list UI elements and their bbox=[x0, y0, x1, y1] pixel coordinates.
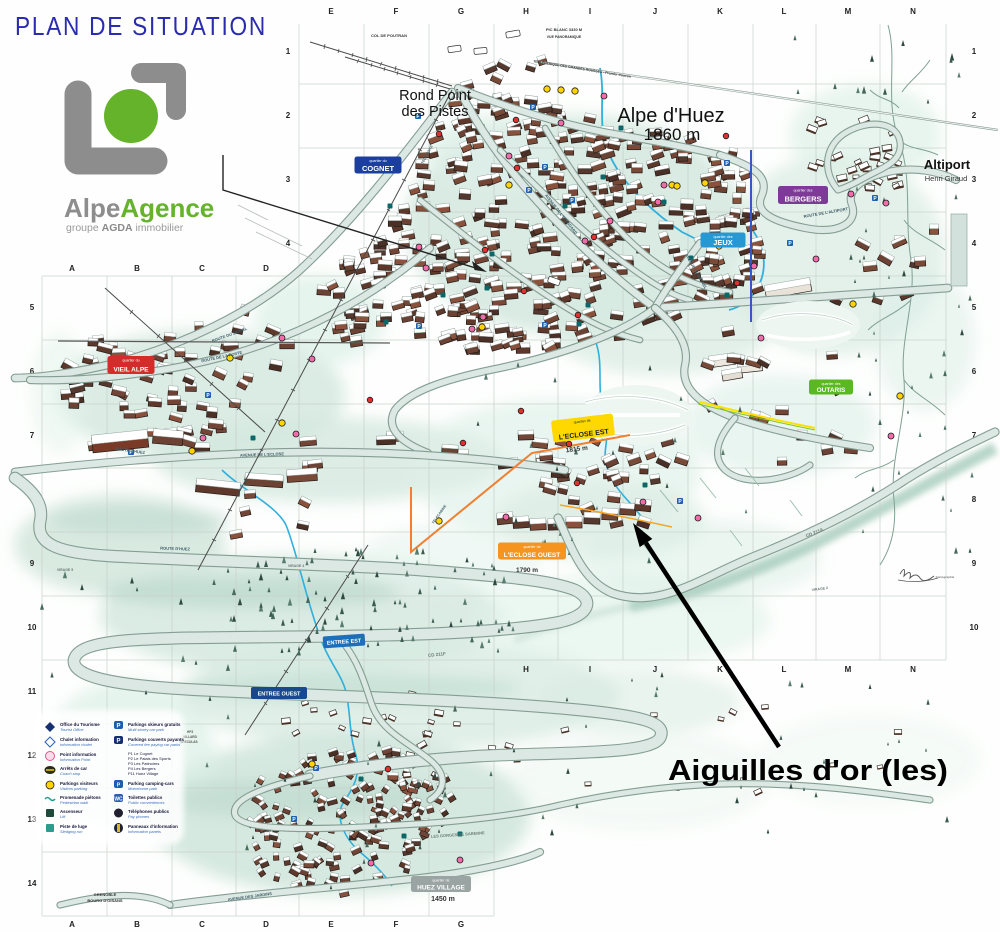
svg-text:M: M bbox=[845, 7, 852, 16]
svg-text:5: 5 bbox=[972, 303, 977, 312]
svg-text:Henri Giraud: Henri Giraud bbox=[925, 174, 968, 183]
svg-text:quartier du: quartier du bbox=[369, 159, 386, 163]
svg-text:14: 14 bbox=[28, 879, 37, 888]
svg-text:BERGERS: BERGERS bbox=[784, 195, 821, 204]
svg-text:2: 2 bbox=[286, 111, 291, 120]
svg-text:Information Point: Information Point bbox=[60, 757, 91, 762]
svg-text:Motorhome park: Motorhome park bbox=[128, 786, 158, 791]
svg-text:Tourist Office: Tourist Office bbox=[60, 727, 84, 732]
svg-text:COGNET: COGNET bbox=[362, 164, 395, 173]
svg-text:VILLARD: VILLARD bbox=[183, 735, 198, 739]
svg-text:AlpeAgence: AlpeAgence bbox=[64, 193, 214, 223]
svg-text:BOURG D'OISANS: BOURG D'OISANS bbox=[87, 898, 123, 903]
svg-text:HUEZ VILLAGE: HUEZ VILLAGE bbox=[417, 885, 465, 892]
svg-text:COL DE POUTRAN: COL DE POUTRAN bbox=[371, 33, 407, 38]
svg-text:VIRAGE 4: VIRAGE 4 bbox=[288, 564, 304, 568]
svg-text:F: F bbox=[394, 920, 399, 929]
svg-text:5: 5 bbox=[30, 303, 35, 312]
svg-text:quartier de: quartier de bbox=[432, 878, 449, 882]
svg-text:K: K bbox=[717, 665, 723, 674]
svg-text:3: 3 bbox=[972, 175, 977, 184]
svg-text:D: D bbox=[263, 920, 269, 929]
svg-text:L'ECLOSE OUEST: L'ECLOSE OUEST bbox=[504, 552, 560, 559]
svg-text:PLAN DE SITUATION: PLAN DE SITUATION bbox=[15, 11, 267, 41]
svg-text:Cartographie: Cartographie bbox=[936, 575, 955, 579]
svg-text:1: 1 bbox=[972, 47, 977, 56]
svg-text:quartier de: quartier de bbox=[523, 545, 540, 549]
svg-text:VIRAGE 5: VIRAGE 5 bbox=[57, 568, 73, 572]
svg-text:Information panels: Information panels bbox=[128, 829, 161, 834]
svg-text:Aiguilles d'or (les): Aiguilles d'or (les) bbox=[668, 755, 948, 787]
svg-text:1: 1 bbox=[286, 47, 291, 56]
svg-text:G: G bbox=[458, 7, 464, 16]
svg-text:Pedestrian walk: Pedestrian walk bbox=[60, 800, 89, 805]
svg-text:WC: WC bbox=[114, 797, 123, 803]
svg-text:F: F bbox=[394, 7, 399, 16]
svg-text:1860 m: 1860 m bbox=[644, 125, 701, 144]
svg-text:L: L bbox=[782, 665, 787, 674]
svg-text:K: K bbox=[717, 7, 723, 16]
svg-text:1790 m: 1790 m bbox=[516, 567, 538, 574]
svg-text:D: D bbox=[263, 264, 269, 273]
svg-text:B: B bbox=[134, 264, 140, 273]
svg-text:quartier des: quartier des bbox=[822, 382, 841, 386]
svg-text:6: 6 bbox=[972, 367, 977, 376]
svg-text:4: 4 bbox=[972, 239, 977, 248]
svg-text:J: J bbox=[653, 7, 657, 16]
svg-text:P: P bbox=[116, 724, 120, 730]
svg-text:ENTREE OUEST: ENTREE OUEST bbox=[258, 692, 301, 698]
svg-text:I: I bbox=[589, 665, 591, 674]
svg-text:PIC BLANC 3330 M: PIC BLANC 3330 M bbox=[546, 27, 583, 32]
svg-text:ROUTE D'HUEZ: ROUTE D'HUEZ bbox=[160, 545, 191, 551]
svg-text:GRENOBLE: GRENOBLE bbox=[94, 892, 117, 897]
svg-text:7: 7 bbox=[30, 431, 35, 440]
svg-text:VIEIL ALPE: VIEIL ALPE bbox=[113, 367, 149, 374]
svg-text:M: M bbox=[845, 665, 852, 674]
svg-text:2: 2 bbox=[972, 111, 977, 120]
svg-text:I: I bbox=[589, 7, 591, 16]
svg-text:H: H bbox=[523, 7, 529, 16]
svg-text:G: G bbox=[458, 920, 464, 929]
svg-text:Multi storey car park: Multi storey car park bbox=[128, 727, 165, 732]
svg-text:des Pistes: des Pistes bbox=[402, 104, 469, 120]
svg-text:C: C bbox=[199, 264, 205, 273]
svg-text:Alpe d'Huez: Alpe d'Huez bbox=[617, 105, 724, 127]
svg-text:Public conveniences: Public conveniences bbox=[128, 800, 164, 805]
svg-text:9: 9 bbox=[972, 559, 977, 568]
svg-text:C: C bbox=[199, 920, 205, 929]
svg-text:groupe AGDA immobilier: groupe AGDA immobilier bbox=[66, 222, 184, 234]
svg-text:Sledging run: Sledging run bbox=[60, 829, 83, 834]
svg-text:Covered fee paying car parks: Covered fee paying car parks bbox=[128, 742, 180, 747]
svg-text:HP3: HP3 bbox=[187, 730, 193, 734]
svg-text:10: 10 bbox=[28, 623, 37, 632]
svg-text:Lift: Lift bbox=[60, 814, 66, 819]
svg-text:Altiport: Altiport bbox=[924, 157, 971, 172]
svg-text:VUE PANORAMIQUE: VUE PANORAMIQUE bbox=[547, 35, 582, 39]
svg-text:Information chalet: Information chalet bbox=[60, 742, 93, 747]
svg-text:L: L bbox=[782, 7, 787, 16]
svg-text:J: J bbox=[653, 665, 657, 674]
svg-text:H: H bbox=[523, 665, 529, 674]
svg-text:A: A bbox=[69, 264, 75, 273]
svg-text:JEUX: JEUX bbox=[713, 238, 733, 247]
svg-text:A: A bbox=[69, 920, 75, 929]
svg-text:OUTARIS: OUTARIS bbox=[817, 387, 846, 394]
svg-text:E: E bbox=[328, 7, 334, 16]
svg-text:Visitors parking: Visitors parking bbox=[60, 786, 88, 791]
svg-text:N: N bbox=[910, 665, 916, 674]
svg-text:11: 11 bbox=[28, 687, 37, 696]
svg-text:quartier du: quartier du bbox=[122, 358, 139, 362]
svg-text:9: 9 bbox=[30, 559, 35, 568]
svg-text:RECULAS: RECULAS bbox=[182, 740, 197, 744]
svg-text:E: E bbox=[328, 920, 334, 929]
svg-text:8: 8 bbox=[972, 495, 977, 504]
svg-text:Coach stop: Coach stop bbox=[60, 771, 81, 776]
svg-text:quartier des: quartier des bbox=[794, 188, 813, 192]
svg-text:N: N bbox=[910, 7, 916, 16]
svg-text:B: B bbox=[134, 920, 140, 929]
svg-text:Rond Point: Rond Point bbox=[399, 88, 471, 104]
svg-text:3: 3 bbox=[286, 175, 291, 184]
svg-text:10: 10 bbox=[970, 623, 979, 632]
svg-text:Pay phones: Pay phones bbox=[128, 814, 149, 819]
svg-text:P11 Huez Village: P11 Huez Village bbox=[128, 771, 159, 776]
svg-text:1450 m: 1450 m bbox=[431, 896, 455, 903]
svg-text:P: P bbox=[116, 739, 120, 745]
